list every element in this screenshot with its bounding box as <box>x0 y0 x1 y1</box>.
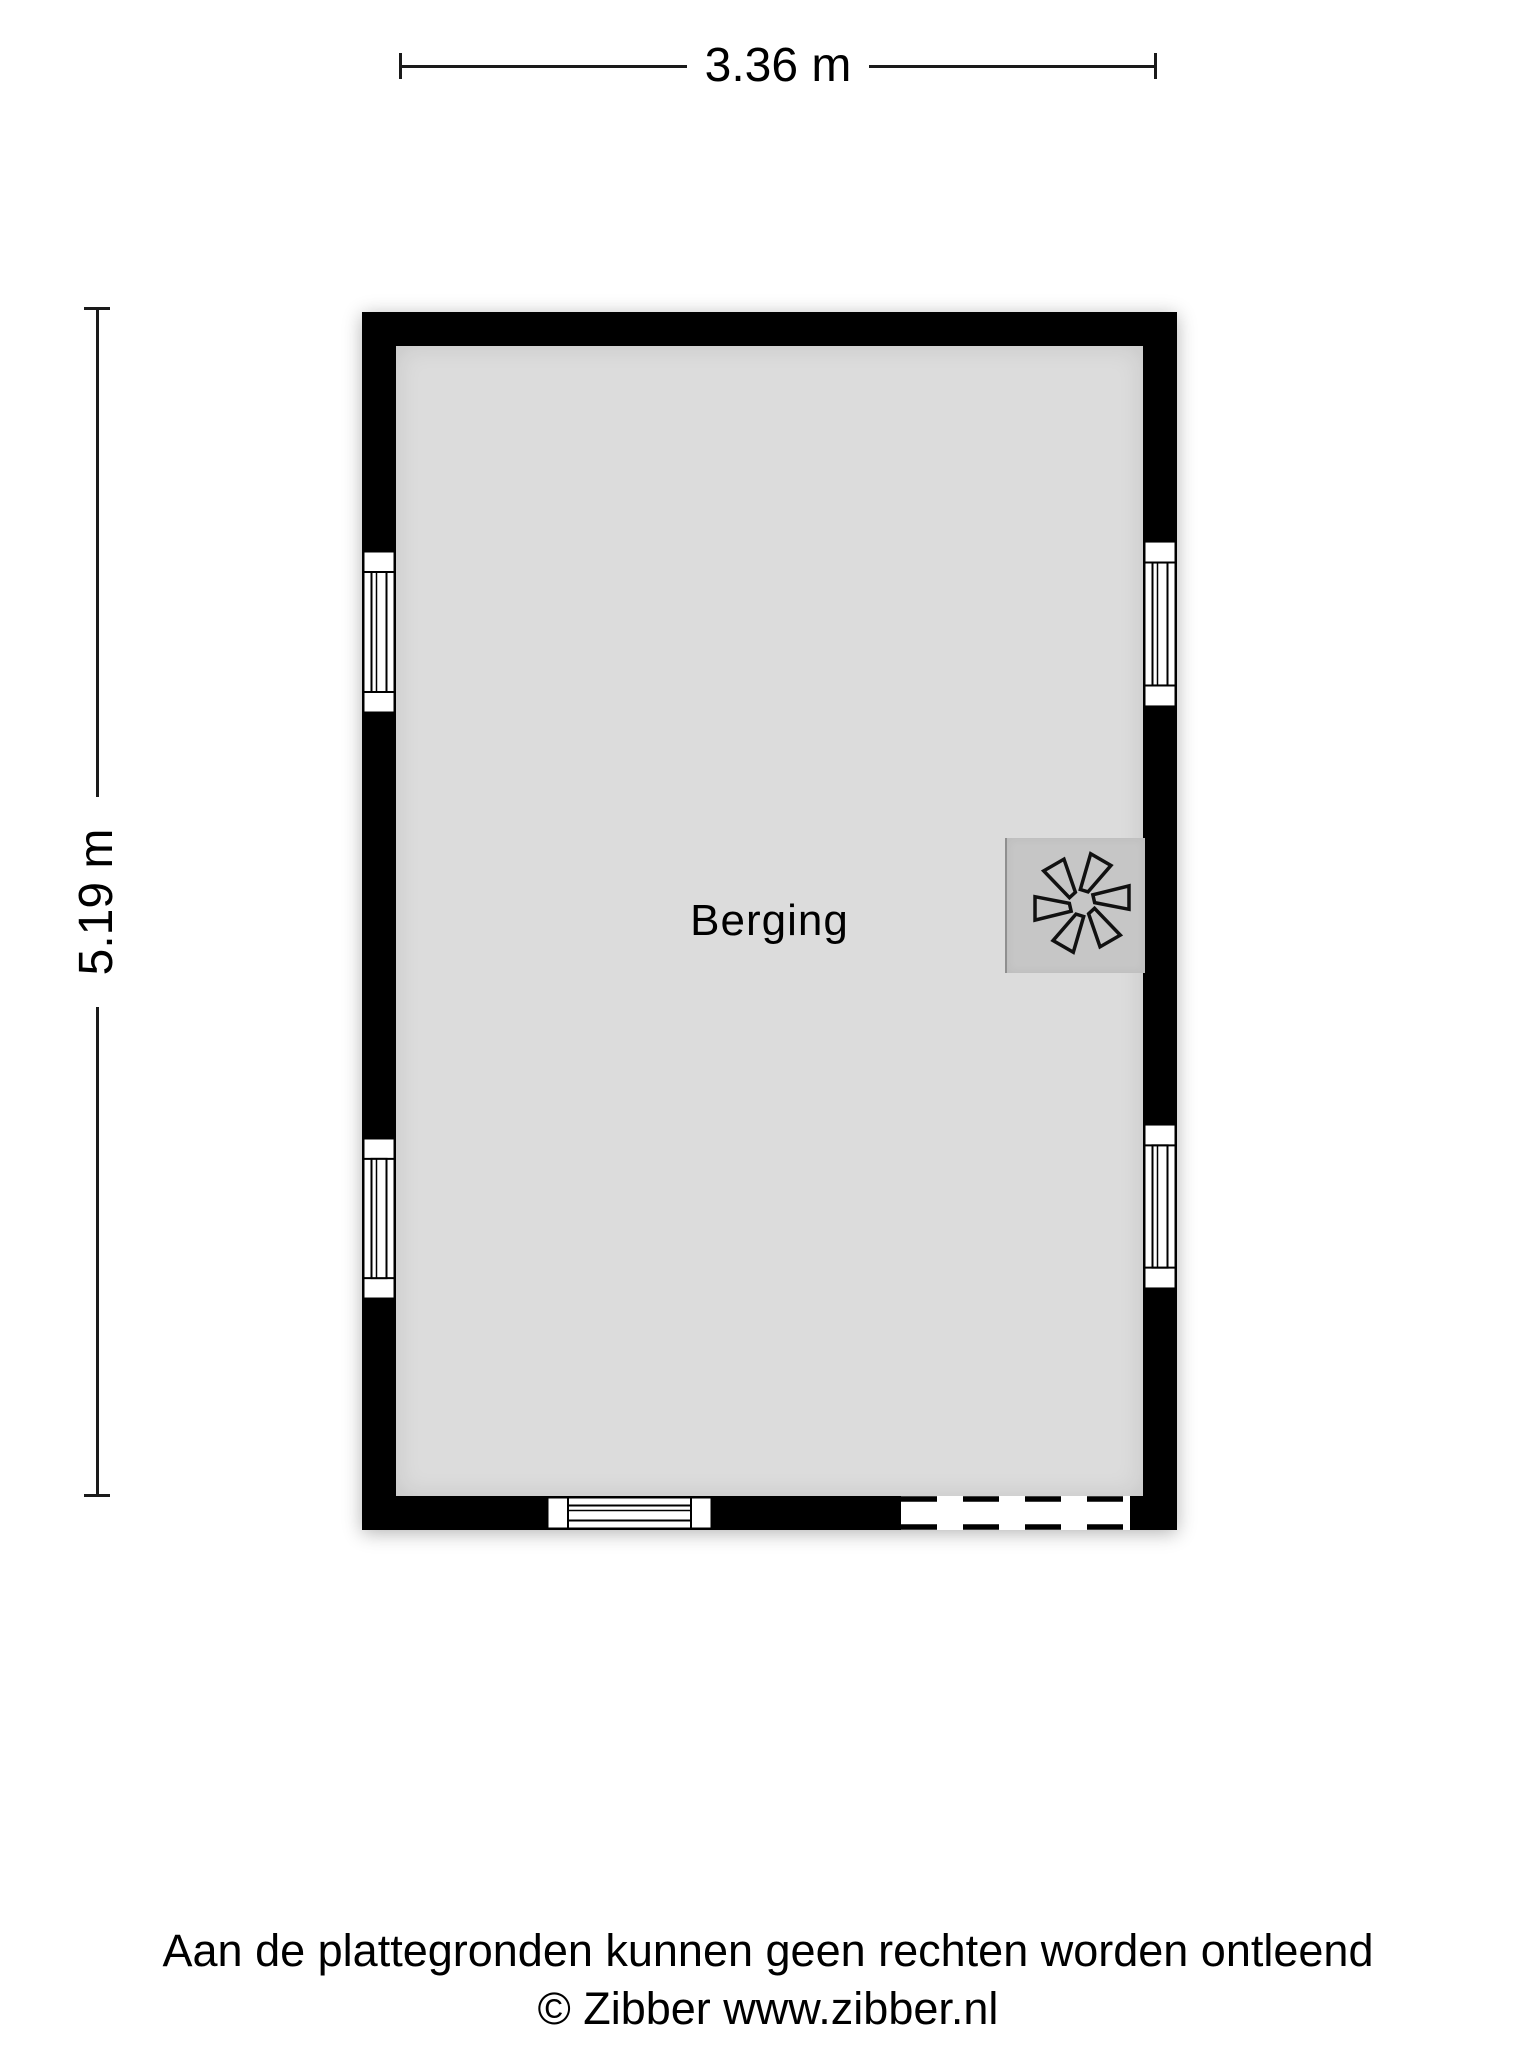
copyright-text: © Zibber www.zibber.nl <box>0 1980 1536 2038</box>
footer: Aan de plattegronden kunnen geen rechten… <box>0 1922 1536 2038</box>
dimension-line-segment <box>96 310 99 797</box>
dimension-tick-bottom <box>84 1494 110 1497</box>
disclaimer-text: Aan de plattegronden kunnen geen rechten… <box>0 1922 1536 1980</box>
window-bottom-icon <box>546 1496 713 1530</box>
height-dimension-label-wrap: 5.19 m <box>69 797 125 1007</box>
window-right-bottom-icon <box>1143 1123 1177 1290</box>
height-dimension: 5.19 m <box>69 307 125 1497</box>
dimension-line-segment <box>402 65 687 68</box>
width-dimension: 3.36 m <box>399 36 1157 96</box>
fan-icon <box>1007 838 1145 973</box>
dimension-tick-right <box>1154 53 1157 79</box>
room-berging: Berging <box>362 312 1177 1530</box>
door-opening <box>901 1496 1130 1530</box>
window-left-top-icon <box>362 550 396 714</box>
floorplan-page: 3.36 m 5.19 m Berging <box>0 0 1536 2048</box>
window-left-bottom-icon <box>362 1137 396 1300</box>
dimension-line-segment <box>96 1007 99 1494</box>
fan-box <box>1005 838 1145 973</box>
window-right-top-icon <box>1143 540 1177 708</box>
dimension-line-segment <box>869 65 1154 68</box>
height-dimension-label: 5.19 m <box>73 829 121 976</box>
width-dimension-label: 3.36 m <box>687 42 870 90</box>
room-label: Berging <box>690 896 849 946</box>
